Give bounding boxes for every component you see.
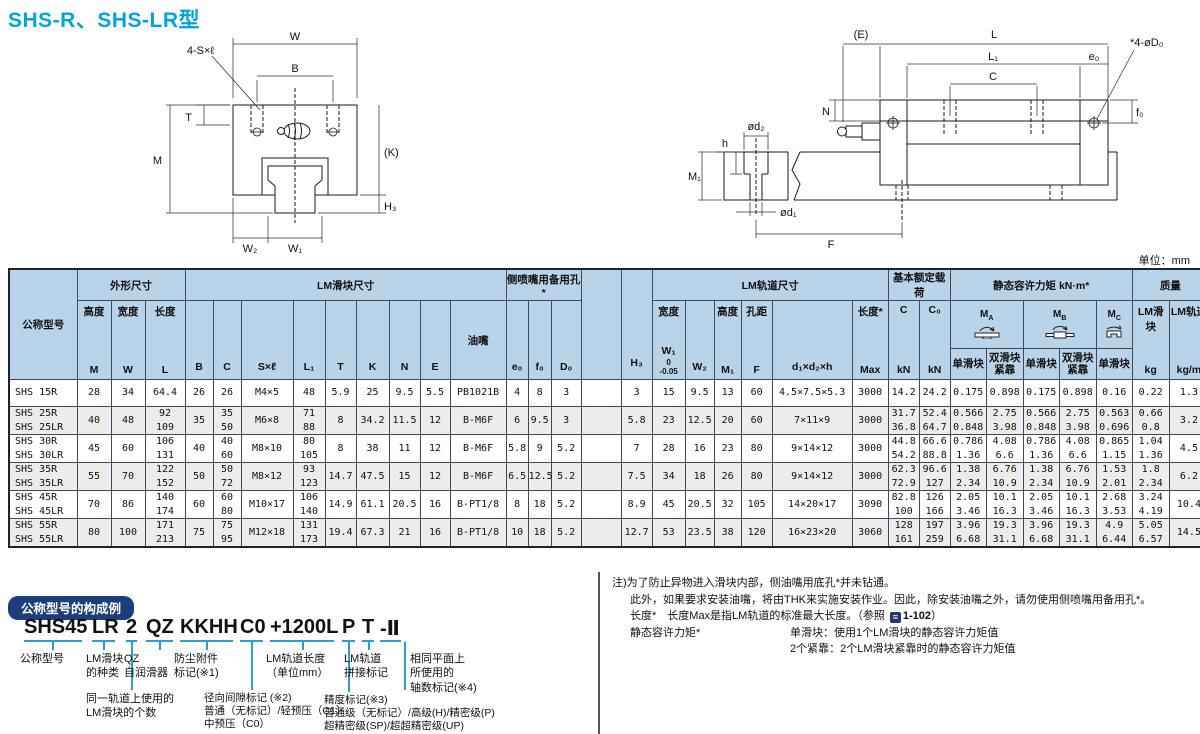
value-cell: 3000: [852, 407, 888, 435]
col-header-length-l: 长度L: [145, 301, 185, 380]
note-line-5: 2个紧靠：2个LM滑块紧靠时的静态容许力矩值: [630, 641, 1196, 658]
dim-label-w1: W₁: [288, 243, 302, 255]
value-cell: 93 123: [293, 463, 325, 491]
value-cell: 0.898: [986, 380, 1023, 407]
value-cell: 5.9: [325, 380, 356, 407]
col-header-w2: W₂: [685, 301, 714, 380]
value-cell: 4.08 6.6: [986, 435, 1023, 463]
value-cell: 18: [528, 519, 551, 548]
dim-label-e0: e₀: [1089, 51, 1100, 63]
value-cell: 5.2: [551, 435, 581, 463]
section-divider: [598, 572, 600, 734]
value-cell: M6×8: [241, 407, 293, 435]
value-cell: 0.865 1.15: [1096, 435, 1132, 463]
value-cell: 0.898: [1059, 380, 1096, 407]
value-cell: 70: [77, 491, 111, 519]
catalog-ref: 1-102: [903, 610, 931, 622]
value-cell: 3: [551, 380, 581, 407]
col-header-height-m: 高度M: [77, 301, 111, 380]
col-header-e: E: [420, 301, 450, 380]
value-cell: PB1021B: [450, 380, 506, 407]
value-cell: B-M6F: [450, 463, 506, 491]
value-cell: 1.04 1.36: [1132, 435, 1169, 463]
label-model: 公称型号: [20, 652, 64, 666]
value-cell: 9: [528, 435, 551, 463]
value-cell: 9.5: [685, 380, 714, 407]
value-cell: 3000: [852, 435, 888, 463]
value-cell: 8: [528, 380, 551, 407]
moment-ma-icon: [967, 323, 1007, 339]
note-length-text: 长度* 长度Max是指LM轨道的标准最大长度。（参照: [630, 610, 888, 622]
value-cell: 8: [325, 407, 356, 435]
moment-mc-icon: [1094, 323, 1134, 339]
value-cell: 34.2: [356, 407, 389, 435]
dim-label-d0: *4-øD₀: [1130, 37, 1163, 49]
note-line-3: 长度* 长度Max是指LM轨道的标准最大长度。（参照 1-102）: [630, 608, 1196, 625]
model-part-axes: -Ⅱ: [380, 616, 400, 641]
value-cell: 8: [506, 491, 528, 519]
group-side-hole: 侧喷嘴用备用孔*: [506, 269, 581, 301]
dim-label-k: (K): [384, 147, 399, 159]
value-cell: 80: [77, 519, 111, 548]
value-cell: 5.05 6.57: [1132, 519, 1169, 548]
value-cell: 14×20×17: [772, 491, 852, 519]
col-header-t: T: [325, 301, 356, 380]
dim-label-f0: f₀: [1136, 107, 1144, 119]
dim-label-m: M: [153, 155, 162, 167]
value-cell: 60: [741, 380, 772, 407]
moment-mb-icon: [1040, 323, 1080, 339]
col-header-f0: f₀: [528, 301, 551, 380]
value-cell: 32: [714, 491, 741, 519]
value-cell: 60: [111, 435, 145, 463]
value-cell: 66.6 88.8: [919, 435, 950, 463]
dim-label-d1: ød₁: [780, 207, 797, 219]
value-cell: 9.5: [389, 380, 420, 407]
value-cell: M4×5: [241, 380, 293, 407]
value-cell: 16: [685, 435, 714, 463]
value-cell: 5.2: [551, 491, 581, 519]
connector-line: [206, 642, 208, 650]
value-cell: 10: [506, 519, 528, 548]
connector-line: [404, 642, 406, 690]
value-cell: 122 152: [145, 463, 185, 491]
value-cell: 50: [185, 463, 213, 491]
value-cell: 23: [714, 435, 741, 463]
value-cell: 4.5×7.5×5.3: [772, 380, 852, 407]
col-header-l1: L₁: [293, 301, 325, 380]
value-cell: 0.16: [1096, 380, 1132, 407]
value-cell: 34: [111, 380, 145, 407]
value-cell: [581, 519, 621, 548]
model-part-joint: T: [362, 616, 374, 639]
col-header-ma-single: 单滑块: [950, 348, 986, 379]
group-outer-dims: 外形尺寸: [77, 269, 185, 301]
col-header-mass-rail: LM轨道kg/m: [1169, 301, 1200, 380]
col-header-ma-double: 双滑块 紧靠: [986, 348, 1023, 379]
value-cell: 21: [389, 519, 420, 548]
connector-line: [251, 642, 253, 690]
front-view-diagram: W B 4-S×ℓ T M (K) H₃ W₂ W₁: [138, 28, 438, 268]
value-cell: 12.5: [528, 463, 551, 491]
dim-label-w: W: [290, 31, 301, 43]
value-cell: 6: [506, 407, 528, 435]
value-cell: 6.2: [1169, 463, 1200, 491]
value-cell: 105: [741, 491, 772, 519]
value-cell: 1.38 2.34: [1023, 463, 1059, 491]
value-cell: 60: [741, 407, 772, 435]
connector-line: [52, 642, 54, 650]
value-cell: 52.4 64.7: [919, 407, 950, 435]
col-header-c-load: CkN: [888, 301, 919, 380]
value-cell: 96.6 127: [919, 463, 950, 491]
catalog-ref-icon: [890, 612, 901, 623]
value-cell: 40: [185, 435, 213, 463]
value-cell: 16×23×20: [772, 519, 852, 548]
value-cell: B-PT1/8: [450, 519, 506, 548]
value-cell: 2.05 3.46: [950, 491, 986, 519]
value-cell: 3: [621, 380, 652, 407]
value-cell: 7: [621, 435, 652, 463]
table-row: SHS 45R SHS 45LR7086140 1746060 80M10×17…: [9, 491, 1200, 519]
col-header-sxl: S×ℓ: [241, 301, 293, 380]
value-cell: 2.75 3.98: [986, 407, 1023, 435]
col-header-w1: 宽度W₁0 -0.05: [652, 301, 685, 380]
value-cell: 47.5: [356, 463, 389, 491]
col-header-nipple: 油嘴: [450, 301, 506, 380]
value-cell: 3.2: [1169, 407, 1200, 435]
model-part-dust: KKHH: [180, 616, 238, 639]
model-name-cell: SHS 30R SHS 30LR: [9, 435, 77, 463]
value-cell: 120: [741, 519, 772, 548]
value-cell: 3060: [852, 519, 888, 548]
value-cell: 3.96 6.68: [950, 519, 986, 548]
dim-label-f: F: [828, 239, 835, 251]
value-cell: 7×11×9: [772, 407, 852, 435]
value-cell: 80: [741, 463, 772, 491]
value-cell: 10.4: [1169, 491, 1200, 519]
value-cell: 0.786 1.36: [950, 435, 986, 463]
note-line-4: 静态容许力矩*单滑块：使用1个LM滑块的静态容许力矩值: [630, 625, 1196, 642]
value-cell: 28: [77, 380, 111, 407]
value-cell: 2.75 3.98: [1059, 407, 1096, 435]
value-cell: 18: [528, 491, 551, 519]
value-cell: 48: [111, 407, 145, 435]
value-cell: 1.3: [1169, 380, 1200, 407]
value-cell: 75: [185, 519, 213, 548]
value-cell: B-PT1/8: [450, 491, 506, 519]
value-cell: 0.175: [950, 380, 986, 407]
value-cell: 13: [714, 380, 741, 407]
value-cell: 48: [293, 380, 325, 407]
value-cell: 6.5: [506, 463, 528, 491]
value-cell: 7.5: [621, 463, 652, 491]
value-cell: 20.5: [685, 491, 714, 519]
dim-label-l: L: [991, 29, 997, 41]
value-cell: 14.9: [325, 491, 356, 519]
col-header-c: C: [213, 301, 241, 380]
value-cell: 9×14×12: [772, 463, 852, 491]
value-cell: 19.3 31.1: [1059, 519, 1096, 548]
table-row: SHS 25R SHS 25LR404892 1093535 50M6×871 …: [9, 407, 1200, 435]
value-cell: 26: [714, 463, 741, 491]
dim-label-e: (E): [854, 29, 869, 41]
col-header-d0: D₀: [551, 301, 581, 380]
value-cell: 12: [420, 435, 450, 463]
col-header-mb-double: 双滑块 紧靠: [1059, 348, 1096, 379]
model-part-qz: QZ: [146, 616, 174, 639]
value-cell: 12.7: [621, 519, 652, 548]
model-name-cell: SHS 25R SHS 25LR: [9, 407, 77, 435]
col-header-f: 孔距F: [741, 301, 772, 380]
dim-label-h3: H₃: [384, 201, 396, 213]
value-cell: 0.786 1.36: [1023, 435, 1059, 463]
value-cell: 8: [325, 435, 356, 463]
value-cell: M8×12: [241, 463, 293, 491]
connector-line: [159, 642, 161, 650]
value-cell: 60 80: [213, 491, 241, 519]
value-cell: 23: [652, 407, 685, 435]
col-header-mass-block: LM滑块kg: [1132, 301, 1169, 380]
label-rail-length: LM轨道长度 （单位mm）: [266, 652, 328, 681]
value-cell: 16: [420, 491, 450, 519]
value-cell: 34: [652, 463, 685, 491]
value-cell: 5.2: [551, 463, 581, 491]
value-cell: 92 109: [145, 407, 185, 435]
side-view-diagram: (E) L L₁ e₀ C *4-øD₀ f₀ N ød₂ h M₁ ød₁ F: [686, 24, 1196, 252]
value-cell: 14.7: [325, 463, 356, 491]
value-cell: 128 161: [888, 519, 919, 548]
value-cell: 15: [652, 380, 685, 407]
value-cell: 1.38 2.34: [950, 463, 986, 491]
value-cell: 86: [111, 491, 145, 519]
value-cell: 53: [652, 519, 685, 548]
value-cell: 106 140: [293, 491, 325, 519]
table-row: SHS 15R283464.42626M4×5485.9259.55.5PB10…: [9, 380, 1200, 407]
value-cell: 61.1: [356, 491, 389, 519]
model-part-preload: C0: [240, 616, 266, 639]
value-cell: 3: [551, 407, 581, 435]
value-cell: 197 259: [919, 519, 950, 548]
value-cell: [581, 463, 621, 491]
dim-label-h: h: [722, 138, 728, 150]
col-header-mc-single: 单滑块: [1096, 348, 1132, 379]
value-cell: 12.5: [685, 407, 714, 435]
table-row: SHS 30R SHS 30LR4560106 1314040 60M8×108…: [9, 435, 1200, 463]
value-cell: 11: [389, 435, 420, 463]
value-cell: 0.66 0.8: [1132, 407, 1169, 435]
col-header-width-w: 宽度W: [111, 301, 145, 380]
value-cell: 20: [714, 407, 741, 435]
value-cell: 106 131: [145, 435, 185, 463]
value-cell: 131 173: [293, 519, 325, 548]
value-cell: 140 174: [145, 491, 185, 519]
value-cell: 3000: [852, 463, 888, 491]
model-part-length: +1200L: [270, 616, 338, 639]
value-cell: 45: [652, 491, 685, 519]
connector-line: [103, 642, 105, 650]
value-cell: 40: [77, 407, 111, 435]
value-cell: 67.3: [356, 519, 389, 548]
col-header-k: K: [356, 301, 389, 380]
value-cell: 19.4: [325, 519, 356, 548]
value-cell: 20.5: [389, 491, 420, 519]
dimensions-table: 公称型号 外形尺寸 LM滑块尺寸 侧喷嘴用备用孔* H₃ LM轨道尺寸 基本额定…: [8, 268, 1200, 548]
value-cell: 8.9: [621, 491, 652, 519]
note-line-1: 注)为了防止异物进入滑块内部，侧油嘴用底孔*并未钻通。: [612, 575, 1196, 592]
value-cell: M8×10: [241, 435, 293, 463]
col-header-n: N: [389, 301, 420, 380]
value-cell: 26: [213, 380, 241, 407]
value-cell: 9.5: [528, 407, 551, 435]
value-cell: 11.5: [389, 407, 420, 435]
value-cell: 18: [685, 463, 714, 491]
model-part-series: SHS45: [24, 616, 87, 639]
value-cell: 4.9 6.44: [1096, 519, 1132, 548]
table-body: SHS 15R283464.42626M4×5485.9259.55.5PB10…: [9, 380, 1200, 548]
value-cell: 6.76 10.9: [986, 463, 1023, 491]
value-cell: 10.1 16.3: [1059, 491, 1096, 519]
value-cell: 62.3 72.9: [888, 463, 919, 491]
col-header-mb: MB: [1023, 301, 1096, 349]
col-header-max: 长度*Max: [852, 301, 888, 380]
value-cell: 0.563 0.696: [1096, 407, 1132, 435]
value-cell: 38: [714, 519, 741, 548]
model-part-accuracy: P: [342, 616, 355, 639]
value-cell: 2.05 3.46: [1023, 491, 1059, 519]
value-cell: 1.53 2.01: [1096, 463, 1132, 491]
model-part-count: 2: [126, 616, 137, 639]
dim-label-c: C: [989, 71, 997, 83]
col-header-mb-single: 单滑块: [1023, 348, 1059, 379]
value-cell: 12: [420, 463, 450, 491]
col-header-model: 公称型号: [9, 269, 77, 380]
group-block-dims: LM滑块尺寸: [185, 269, 506, 301]
value-cell: 5.2: [551, 519, 581, 548]
value-cell: 0.566 0.848: [1023, 407, 1059, 435]
model-name-cell: SHS 45R SHS 45LR: [9, 491, 77, 519]
value-cell: [581, 435, 621, 463]
value-cell: 19.3 31.1: [986, 519, 1023, 548]
value-cell: 35: [185, 407, 213, 435]
dim-label-d2: ød₂: [747, 121, 764, 133]
value-cell: [581, 380, 621, 407]
dim-label-t: T: [185, 112, 192, 124]
table-row: SHS 35R SHS 35LR5570122 1525050 72M8×129…: [9, 463, 1200, 491]
value-cell: 25: [356, 380, 389, 407]
value-cell: 5.8: [621, 407, 652, 435]
value-cell: 171 213: [145, 519, 185, 548]
value-cell: 6.76 10.9: [1059, 463, 1096, 491]
value-cell: 75 95: [213, 519, 241, 548]
group-mass: 质量: [1132, 269, 1200, 301]
value-cell: 44.8 54.2: [888, 435, 919, 463]
value-cell: 55: [77, 463, 111, 491]
notes-block: 注)为了防止异物进入滑块内部，侧油嘴用底孔*并未钻通。 此外，如果要求安装油嘴，…: [612, 575, 1196, 658]
value-cell: B-M6F: [450, 407, 506, 435]
value-cell: 3.96 6.68: [1023, 519, 1059, 548]
connector-line: [380, 640, 401, 642]
value-cell: 10.1 16.3: [986, 491, 1023, 519]
value-cell: [581, 407, 621, 435]
value-cell: 2.68 3.53: [1096, 491, 1132, 519]
connector-line: [302, 642, 304, 650]
value-cell: 3090: [852, 491, 888, 519]
note-line-2: 此外，如果要求安装油嘴，将由THK来实施安装作业。因此，除安装油嘴之外，请勿使用…: [630, 592, 1196, 609]
value-cell: 45: [77, 435, 111, 463]
value-cell: 0.22: [1132, 380, 1169, 407]
dim-label-w2: W₂: [243, 243, 258, 255]
dim-label-sxl: 4-S×ℓ: [187, 45, 215, 57]
group-basic-load: 基本额定载荷: [888, 269, 950, 301]
label-axes: 相同平面上 所使用的 轴数标记(※4): [410, 652, 477, 695]
value-cell: 26: [185, 380, 213, 407]
value-cell: 1.8 2.34: [1132, 463, 1169, 491]
value-cell: B-M6F: [450, 435, 506, 463]
value-cell: 38: [356, 435, 389, 463]
value-cell: 14.2: [888, 380, 919, 407]
label-block-count: 同一轨道上使用的 LM滑块的个数: [86, 692, 174, 721]
col-header-c0-load: C₀kN: [919, 301, 950, 380]
value-cell: 71 88: [293, 407, 325, 435]
value-cell: 15: [389, 463, 420, 491]
label-accuracy: 精度标记(※3) 普通级（无标记）/高级(H)/精密级(P) 超精密级(SP)/…: [324, 694, 495, 733]
value-cell: 16: [420, 519, 450, 548]
value-cell: 4: [506, 380, 528, 407]
col-header-d1d2h: d₁×d₂×h: [772, 301, 852, 380]
col-header-h3: H₃: [621, 269, 652, 380]
table-row: SHS 55R SHS 55LR80100171 2137575 95M12×1…: [9, 519, 1200, 548]
value-cell: 80: [741, 435, 772, 463]
value-cell: 4.08 6.6: [1059, 435, 1096, 463]
value-cell: 9×14×12: [772, 435, 852, 463]
value-cell: 82.8 100: [888, 491, 919, 519]
dim-label-b: B: [291, 63, 298, 75]
value-cell: 0.566 0.848: [950, 407, 986, 435]
value-cell: 5.5: [420, 380, 450, 407]
label-joint: LM轨道 拼接标记: [344, 652, 388, 681]
value-cell: 23.5: [685, 519, 714, 548]
value-cell: 5.8: [506, 435, 528, 463]
dim-label-l1: L₁: [988, 51, 998, 63]
value-cell: 14.5: [1169, 519, 1200, 548]
label-block-type: LM滑块 的种类: [86, 652, 123, 681]
value-cell: 80 105: [293, 435, 325, 463]
value-cell: M12×18: [241, 519, 293, 548]
col-header-ma: MA: [950, 301, 1023, 349]
value-cell: M10×17: [241, 491, 293, 519]
value-cell: 40 60: [213, 435, 241, 463]
value-cell: [581, 491, 621, 519]
value-cell: 60: [185, 491, 213, 519]
model-name-cell: SHS 15R: [9, 380, 77, 407]
model-number-example: 公称型号的构成例 SHS45 LR 2 QZ KKHH C0 +1200L P …: [8, 596, 596, 734]
group-rail-dims: LM轨道尺寸: [652, 269, 888, 301]
model-part-block: LR: [92, 616, 119, 639]
spacer-column-header: [581, 269, 621, 380]
value-cell: 126 166: [919, 491, 950, 519]
col-header-m1: 高度M₁: [714, 301, 741, 380]
label-qz: QZ 自润滑器: [124, 652, 168, 681]
value-cell: 12: [420, 407, 450, 435]
catalog-page: SHS-R、SHS-LR型: [0, 0, 1200, 734]
group-static-moment: 静态容许力矩 kN·m*: [950, 269, 1132, 301]
value-cell: 50 72: [213, 463, 241, 491]
model-name-cell: SHS 55R SHS 55LR: [9, 519, 77, 548]
value-cell: 4.5: [1169, 435, 1200, 463]
value-cell: 3000: [852, 380, 888, 407]
label-dust: 防尘附件 标记(※1): [174, 652, 219, 681]
